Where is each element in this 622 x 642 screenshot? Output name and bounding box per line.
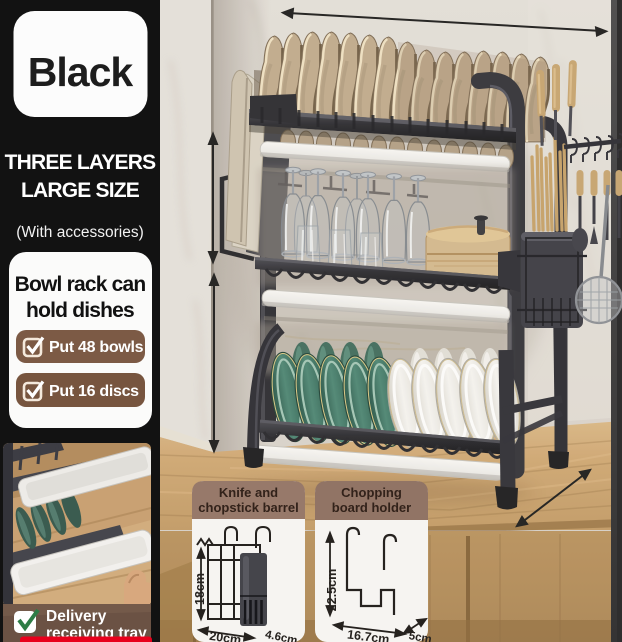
svg-text:22.5cm: 22.5cm bbox=[325, 569, 339, 611]
svg-text:chopstick barrel: chopstick barrel bbox=[198, 500, 298, 515]
svg-text:Knife and: Knife and bbox=[219, 485, 278, 500]
svg-text:THREE LAYERS: THREE LAYERS bbox=[5, 151, 156, 174]
svg-text:Bowl rack can: Bowl rack can bbox=[15, 273, 146, 296]
svg-text:Delivery: Delivery bbox=[46, 608, 107, 625]
svg-text:Put 16 discs: Put 16 discs bbox=[49, 383, 139, 400]
svg-text:18cm: 18cm bbox=[193, 573, 207, 605]
svg-text:Chopping: Chopping bbox=[341, 485, 402, 500]
svg-text:Put 48 bowls: Put 48 bowls bbox=[49, 339, 144, 356]
svg-text:board holder: board holder bbox=[332, 500, 411, 515]
svg-text:hold dishes: hold dishes bbox=[26, 299, 134, 322]
svg-text:Black: Black bbox=[28, 49, 134, 95]
svg-text:LARGE SIZE: LARGE SIZE bbox=[21, 179, 140, 202]
svg-text:(With accessories): (With accessories) bbox=[16, 224, 143, 241]
